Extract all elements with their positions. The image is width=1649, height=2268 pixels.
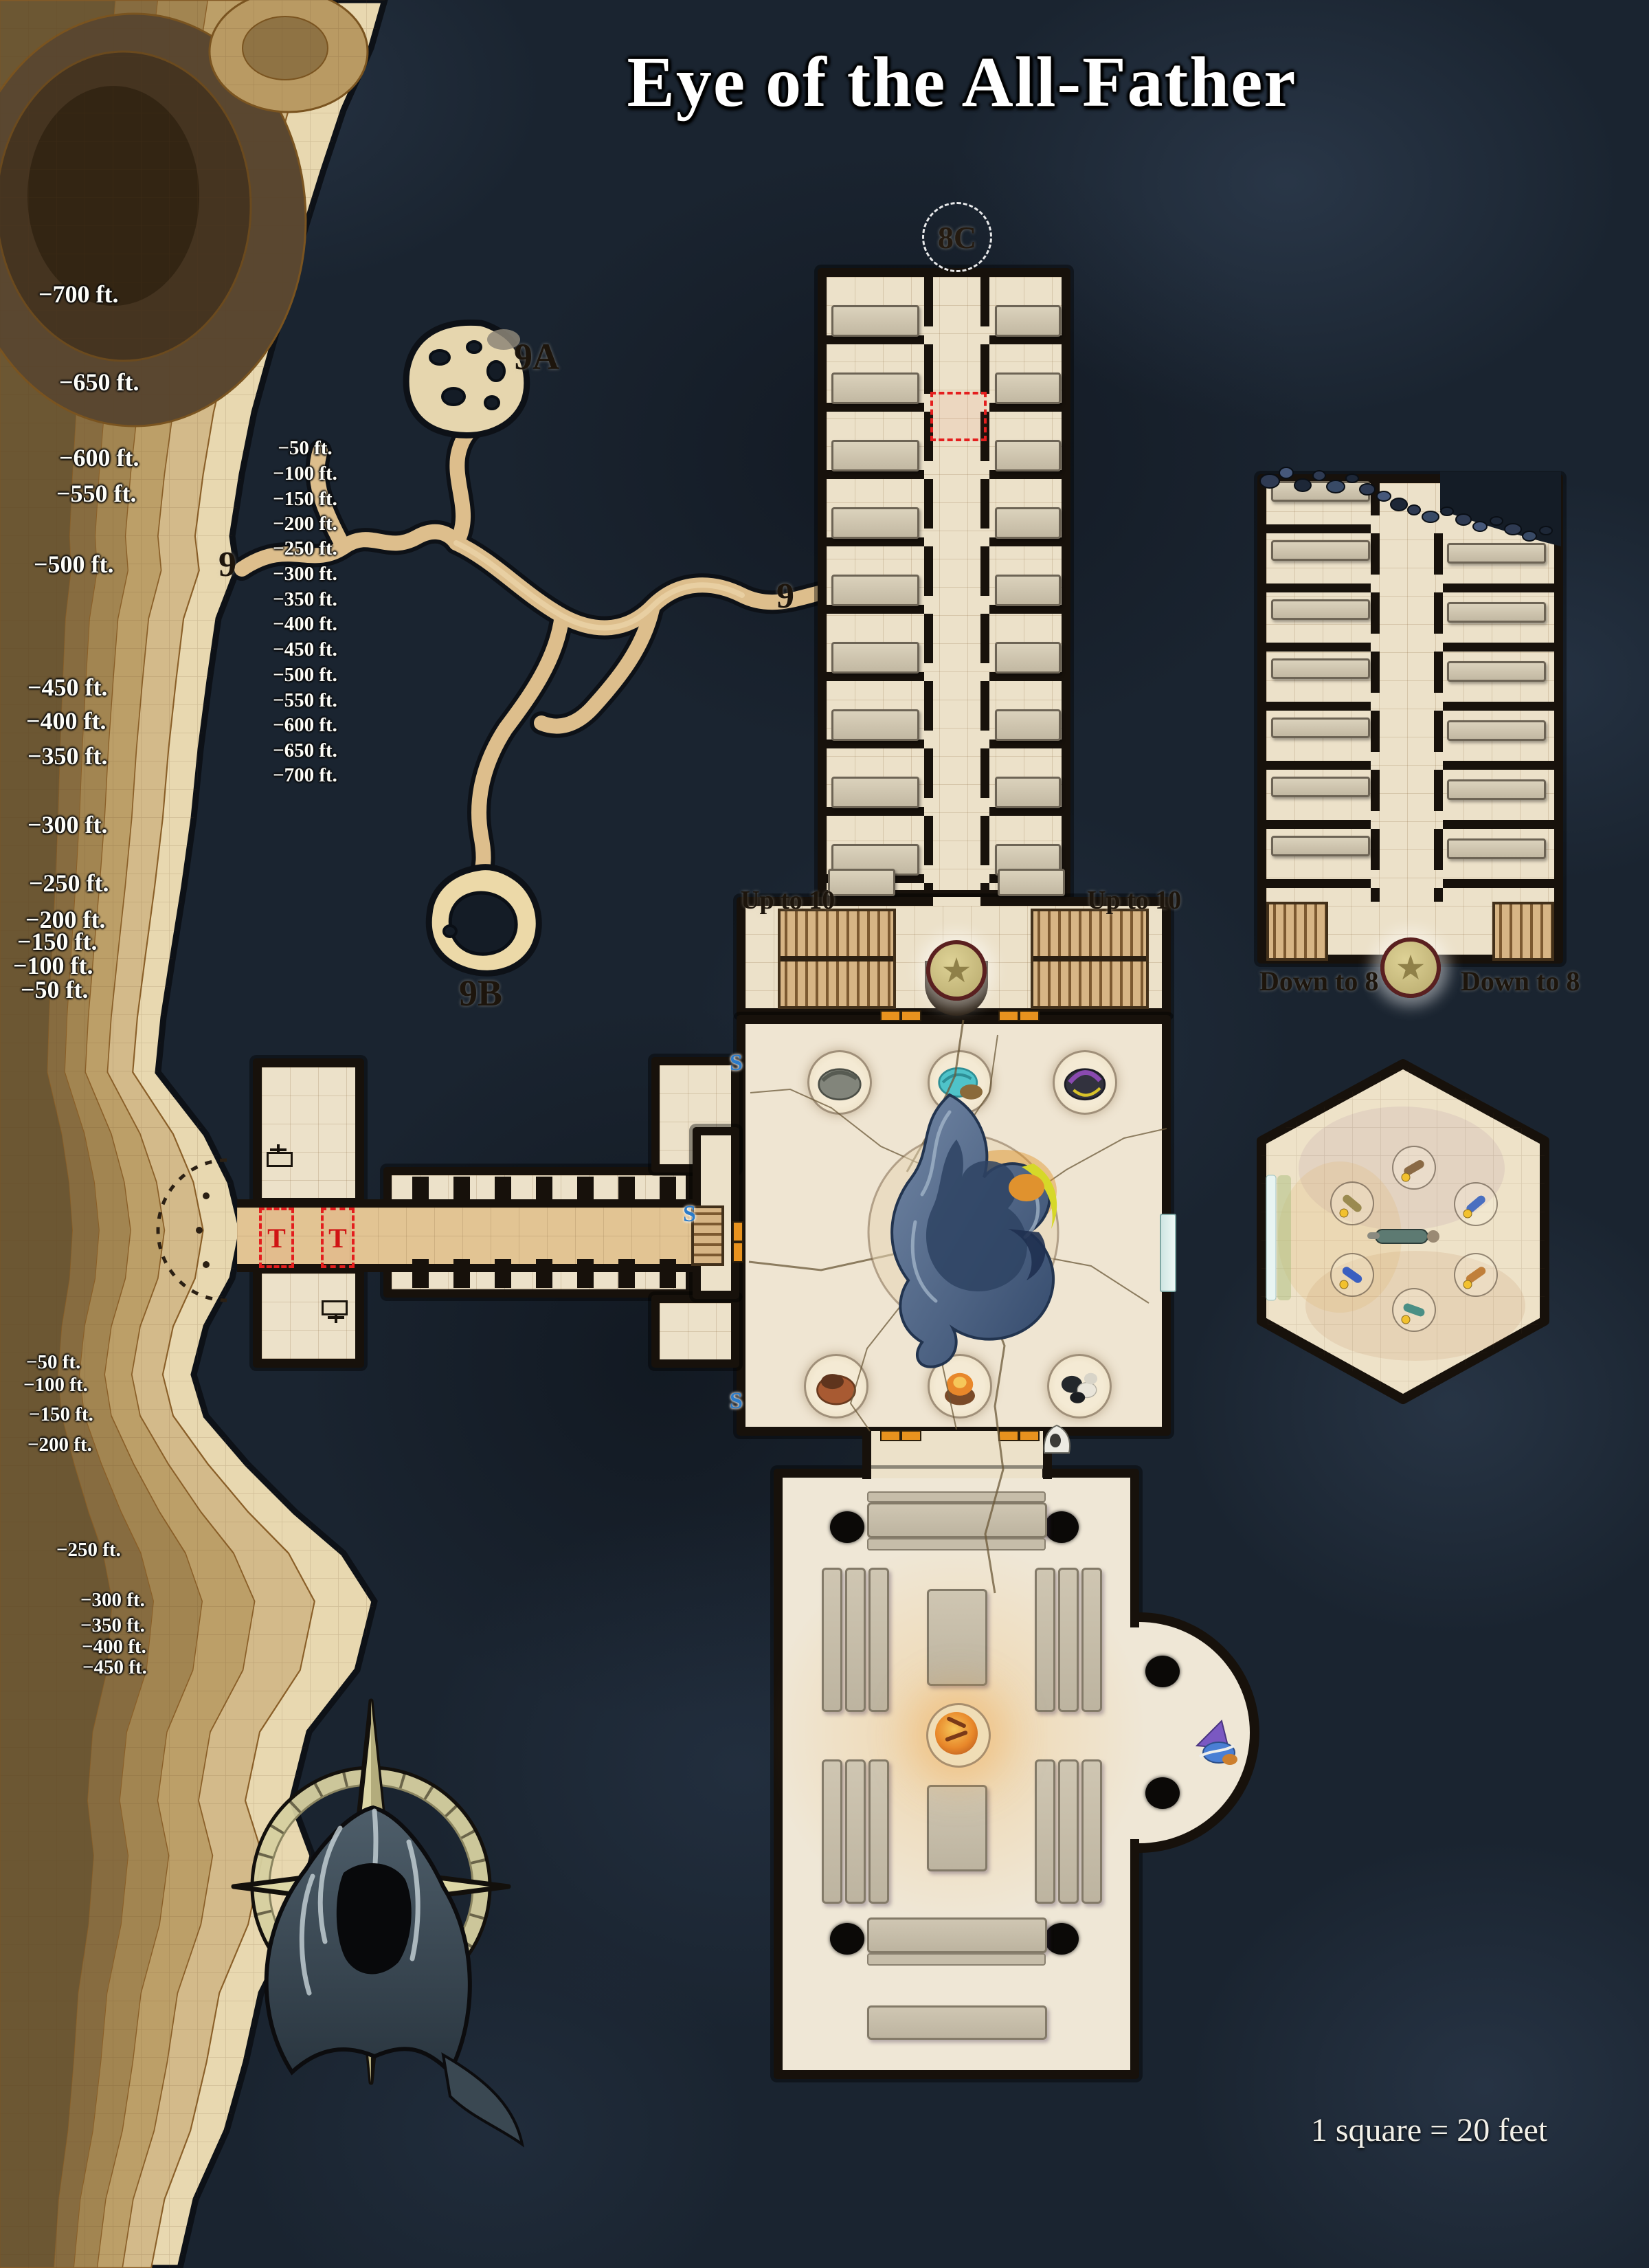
bed [1447, 661, 1546, 682]
door-marker [998, 1010, 1019, 1021]
elevation-label: −700 ft. [38, 280, 119, 309]
map-title: Eye of the All-Father [591, 41, 1333, 123]
giant-figure [1454, 1182, 1498, 1226]
pillar [1044, 1511, 1079, 1543]
column [412, 1259, 429, 1288]
bed [1271, 540, 1370, 561]
elevation-label: −700 ft. [272, 764, 338, 787]
bed [1447, 602, 1546, 623]
bed [995, 507, 1061, 539]
elevation-label: −600 ft. [59, 443, 139, 472]
elevation-label: −450 ft. [82, 1656, 147, 1679]
column [453, 1259, 470, 1288]
giant-figure [1330, 1253, 1374, 1297]
elevation-label: −650 ft. [272, 740, 338, 762]
table [1035, 1759, 1055, 1904]
elevation-label: −150 ft. [29, 1403, 93, 1426]
altar-icon [322, 1300, 348, 1315]
area-label-text: 8C [938, 219, 976, 256]
table [1058, 1759, 1079, 1904]
table [1058, 1568, 1079, 1712]
brazier-rust [804, 1354, 868, 1419]
elevation-label: −250 ft. [29, 869, 109, 898]
table [867, 1917, 1047, 1953]
bed [1271, 836, 1370, 856]
brazier-teal [928, 1050, 992, 1115]
door-marker [1019, 1430, 1040, 1441]
door-marker [998, 1430, 1019, 1441]
giant-figure [1392, 1288, 1436, 1332]
table [868, 1759, 889, 1904]
elevation-label: −650 ft. [59, 368, 139, 397]
bed [995, 709, 1061, 741]
table [1081, 1759, 1102, 1904]
bed [831, 440, 919, 471]
trap-square-corridor [930, 392, 987, 441]
elevation-label: −350 ft. [80, 1614, 145, 1637]
column [536, 1259, 552, 1288]
elevation-label: −350 ft. [272, 588, 338, 611]
elevation-label: −500 ft. [272, 664, 338, 687]
elevation-label: −100 ft. [23, 1374, 88, 1397]
corridor-wall-left [924, 277, 933, 890]
table [1035, 1568, 1055, 1712]
west-stairs [691, 1205, 724, 1266]
column [536, 1177, 552, 1205]
elevation-label: −450 ft. [272, 638, 338, 661]
bed [995, 575, 1061, 606]
secret-door-marker: S [730, 1050, 743, 1076]
column [412, 1177, 429, 1205]
elevation-label: −150 ft. [272, 488, 338, 511]
apse-opening [1123, 1627, 1141, 1839]
elevation-label: −600 ft. [272, 714, 338, 737]
elevation-label: −200 ft. [27, 1434, 92, 1456]
bed [1271, 599, 1370, 620]
bed [831, 507, 919, 539]
bed [995, 305, 1061, 337]
bed [995, 777, 1061, 808]
table [822, 1759, 842, 1904]
altar-icon [267, 1152, 293, 1167]
scale-note: 1 square = 20 feet [1271, 2111, 1587, 2149]
stair-label: Up to 10 [741, 885, 835, 915]
elevation-label: −400 ft. [82, 1636, 146, 1658]
bed [1447, 779, 1546, 800]
stairs-up-left [778, 909, 896, 1009]
elevation-label: −550 ft. [56, 479, 137, 508]
west-room-sw [253, 1265, 364, 1368]
pillar [830, 1511, 864, 1543]
bed [1447, 720, 1546, 741]
column [660, 1259, 676, 1288]
area-label-9-west: 9 [218, 544, 236, 585]
bed [1271, 658, 1370, 679]
giant-figure [1330, 1181, 1374, 1225]
bed [831, 305, 919, 337]
trap-square: T [259, 1208, 294, 1268]
trap-label: T [328, 1222, 347, 1254]
star-emblem-icon: ★ [1380, 937, 1441, 998]
bed [998, 869, 1065, 896]
elevation-label: −250 ft. [272, 537, 338, 560]
column [495, 1177, 511, 1205]
table [845, 1759, 866, 1904]
trap-label: T [267, 1222, 286, 1254]
bed [831, 709, 919, 741]
stairs-down-right [1492, 902, 1554, 961]
bed [1447, 543, 1546, 564]
elevation-label: −350 ft. [27, 742, 108, 770]
pillar [830, 1923, 864, 1955]
elevation-label: −300 ft. [272, 563, 338, 586]
star-emblem-icon: ★ [926, 940, 987, 1001]
elevation-label: −50 ft. [21, 975, 89, 1004]
door-marker [732, 1242, 743, 1263]
column [618, 1177, 635, 1205]
bed [831, 373, 919, 404]
table [822, 1568, 842, 1712]
column [577, 1259, 594, 1288]
elevation-label: −300 ft. [27, 810, 108, 839]
elevation-label: −200 ft. [272, 513, 338, 535]
bed [995, 440, 1061, 471]
giant-figure [1454, 1253, 1498, 1297]
pillar [1145, 1656, 1180, 1687]
table [1081, 1568, 1102, 1712]
bench [867, 1491, 1046, 1502]
elevation-label: −400 ft. [26, 707, 106, 735]
bed [831, 575, 919, 606]
bed [1447, 838, 1546, 859]
bed [828, 869, 895, 896]
brazier-stones [1047, 1354, 1112, 1419]
bed [1271, 718, 1370, 738]
elevation-label: −250 ft. [56, 1539, 121, 1561]
table [927, 1589, 987, 1686]
hall-opening [871, 1469, 1042, 1478]
elevation-label: −450 ft. [27, 673, 108, 702]
corridor-wall-right [980, 277, 989, 890]
table [927, 1785, 987, 1871]
giant-figure [1392, 1146, 1436, 1190]
secret-door-marker: S [730, 1388, 743, 1414]
bed [995, 373, 1061, 404]
stairs-down-left [1266, 902, 1328, 961]
battle-map: ★ ★ T T S S S [0, 0, 1649, 2268]
area-label-9-east: 9 [776, 576, 794, 616]
stairs-up-right [1031, 909, 1149, 1009]
stair-label: Up to 10 [1087, 885, 1181, 915]
bed [995, 642, 1061, 674]
bed [1271, 777, 1370, 797]
area-label-9a: 9A [514, 335, 559, 378]
elevation-label: −300 ft. [80, 1589, 145, 1612]
door-marker [880, 1430, 901, 1441]
secret-door-marker: S [683, 1201, 696, 1227]
column [618, 1259, 635, 1288]
door-marker [901, 1010, 921, 1021]
table [868, 1568, 889, 1712]
column [453, 1177, 470, 1205]
bed [831, 777, 919, 808]
pillar [1145, 1777, 1180, 1809]
door-marker [1019, 1010, 1040, 1021]
area-label-8c: 8C [922, 202, 992, 272]
trap-square: T [321, 1208, 355, 1268]
brazier-rock [807, 1050, 872, 1115]
elevation-label: −50 ft. [272, 437, 338, 460]
elevation-label: −400 ft. [272, 613, 338, 636]
west-room-se [651, 1295, 739, 1368]
door-marker [732, 1221, 743, 1242]
elevation-label: −100 ft. [272, 463, 338, 485]
bed [831, 642, 919, 674]
bench [867, 1538, 1046, 1550]
table [867, 1502, 1047, 1538]
elevation-label: −550 ft. [272, 689, 338, 712]
stair-label: Down to 8 [1461, 965, 1580, 997]
stair-label: Down to 8 [1259, 965, 1378, 997]
elevation-label: −500 ft. [34, 550, 114, 579]
table [845, 1568, 866, 1712]
door-marker [880, 1010, 901, 1021]
bench [867, 1953, 1046, 1966]
fire-bowl [926, 1703, 991, 1768]
area-label-9b: 9B [459, 972, 502, 1014]
elevation-label: −50 ft. [26, 1351, 80, 1374]
brazier-shell [1053, 1050, 1117, 1115]
pillar [1044, 1923, 1079, 1955]
table [867, 2005, 1047, 2040]
ice-door [1160, 1214, 1176, 1292]
west-room-nw [253, 1058, 364, 1207]
bed [1271, 481, 1370, 502]
door-marker [901, 1430, 921, 1441]
column [660, 1177, 676, 1205]
column [577, 1177, 594, 1205]
stair-chamber-opening [933, 897, 980, 906]
brazier-fire [928, 1354, 992, 1419]
column [495, 1259, 511, 1288]
